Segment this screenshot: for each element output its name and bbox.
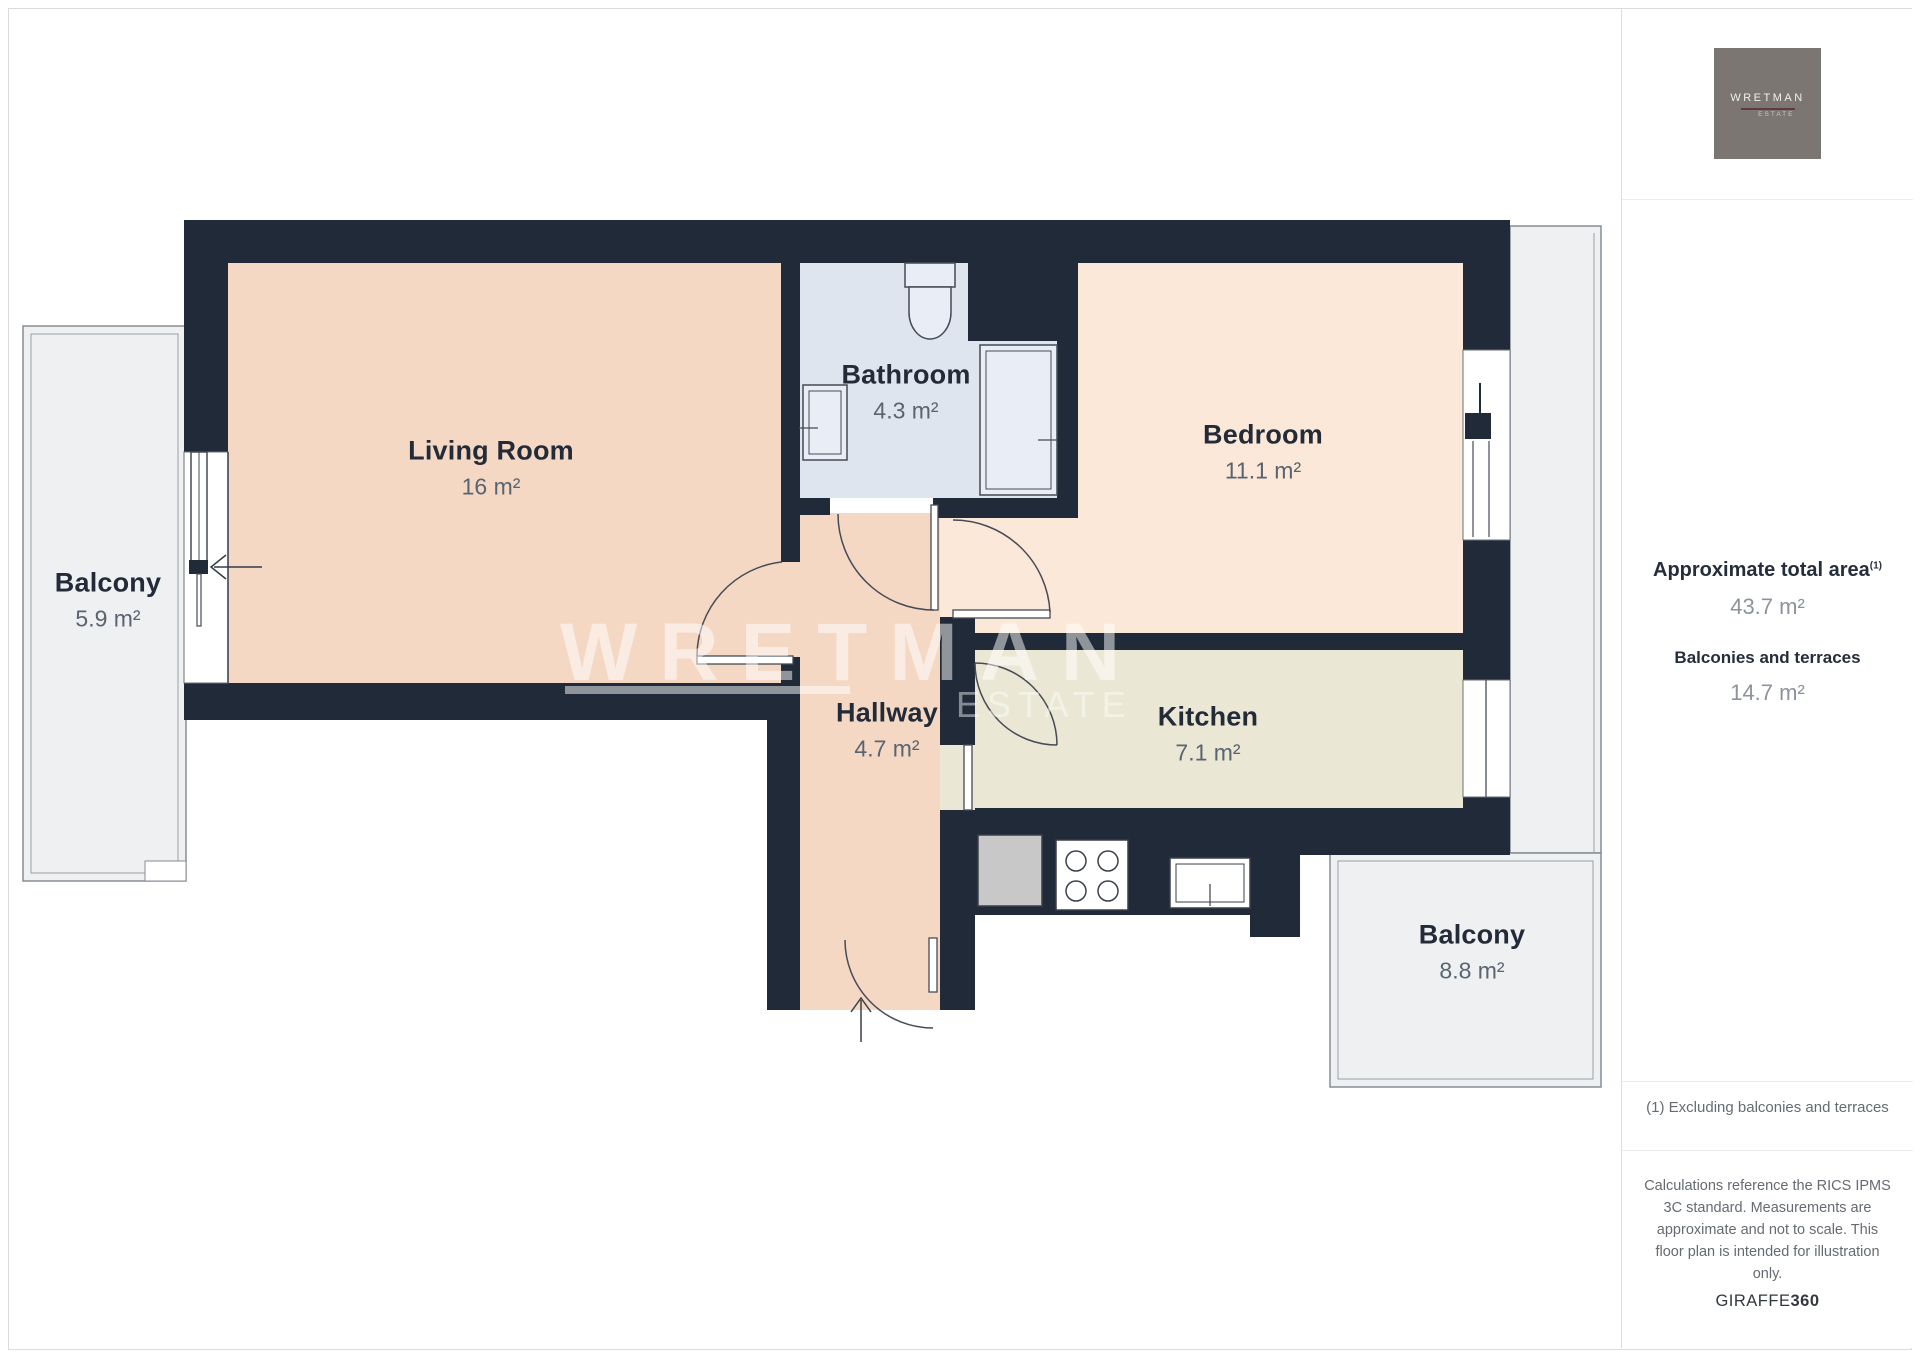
floor-plan-page: WRETMAN ESTATE Living Room 16 m² Bathroo… bbox=[0, 0, 1920, 1358]
living-room-name: Living Room bbox=[408, 436, 574, 467]
label-bedroom: Bedroom 11.1 m² bbox=[1203, 420, 1323, 485]
floor-plan: WRETMAN ESTATE Living Room 16 m² Bathroo… bbox=[0, 0, 1620, 1358]
bathroom-name: Bathroom bbox=[841, 360, 970, 391]
info-sidebar: WRETMAN ESTATE Approximate total area(1)… bbox=[1621, 9, 1913, 1348]
living-room-area: 16 m² bbox=[408, 474, 574, 501]
kitchen-name: Kitchen bbox=[1158, 702, 1258, 733]
total-area-value: 43.7 m² bbox=[1622, 594, 1913, 620]
total-area-label: Approximate total area bbox=[1653, 559, 1870, 581]
balcony-right-name: Balcony bbox=[1419, 920, 1525, 951]
label-kitchen: Kitchen 7.1 m² bbox=[1158, 702, 1258, 767]
balconies-value: 14.7 m² bbox=[1622, 680, 1913, 706]
stove-icon bbox=[1056, 840, 1128, 910]
hallway-name: Hallway bbox=[836, 698, 938, 729]
total-area-heading: Approximate total area(1) bbox=[1622, 559, 1913, 582]
kitchen-area: 7.1 m² bbox=[1158, 740, 1258, 767]
label-balcony-left: Balcony 5.9 m² bbox=[55, 568, 161, 633]
bathroom-sink-icon bbox=[799, 385, 847, 460]
hallway-area: 4.7 m² bbox=[836, 736, 938, 763]
agency-logo-name: WRETMAN bbox=[1714, 92, 1821, 104]
bathroom-area: 4.3 m² bbox=[841, 398, 970, 425]
area-summary: Approximate total area(1) 43.7 m² Balcon… bbox=[1622, 559, 1913, 706]
sidebar-divider-1 bbox=[1622, 199, 1913, 200]
balcony-left-area: 5.9 m² bbox=[55, 606, 161, 633]
floor-plan-drawing bbox=[0, 0, 1620, 1358]
shower-icon bbox=[980, 345, 1057, 495]
brand-name: GIRAFFE bbox=[1715, 1292, 1790, 1310]
agency-logo-sub: ESTATE bbox=[1741, 111, 1795, 118]
kitchen-window bbox=[1463, 680, 1510, 797]
label-living-room: Living Room 16 m² bbox=[408, 436, 574, 501]
total-area-footnote-ref: (1) bbox=[1870, 560, 1882, 571]
bedroom-area: 11.1 m² bbox=[1203, 458, 1323, 485]
balconies-heading: Balconies and terraces bbox=[1622, 648, 1913, 668]
bedroom-balcony-door bbox=[1463, 350, 1510, 540]
bedroom-name: Bedroom bbox=[1203, 420, 1323, 451]
sidebar-divider-3 bbox=[1622, 1150, 1913, 1151]
sidebar-divider-2 bbox=[1622, 1081, 1913, 1082]
brand-suffix: 360 bbox=[1790, 1292, 1819, 1310]
giraffe360-brand: GIRAFFE360 bbox=[1622, 1292, 1913, 1311]
label-bathroom: Bathroom 4.3 m² bbox=[841, 360, 970, 425]
fridge-icon bbox=[978, 835, 1042, 906]
footnote: (1) Excluding balconies and terraces bbox=[1622, 1099, 1913, 1116]
label-hallway: Hallway 4.7 m² bbox=[836, 698, 938, 763]
disclaimer-text: Calculations reference the RICS IPMS 3C … bbox=[1642, 1175, 1894, 1285]
label-balcony-right: Balcony 8.8 m² bbox=[1419, 920, 1525, 985]
kitchen-sink-icon bbox=[1170, 858, 1250, 908]
toilet-icon bbox=[905, 263, 955, 339]
balcony-left-name: Balcony bbox=[55, 568, 161, 599]
agency-logo-rule bbox=[1741, 108, 1795, 110]
agency-logo: WRETMAN ESTATE bbox=[1714, 48, 1821, 159]
balcony-right-area: 8.8 m² bbox=[1419, 958, 1525, 985]
